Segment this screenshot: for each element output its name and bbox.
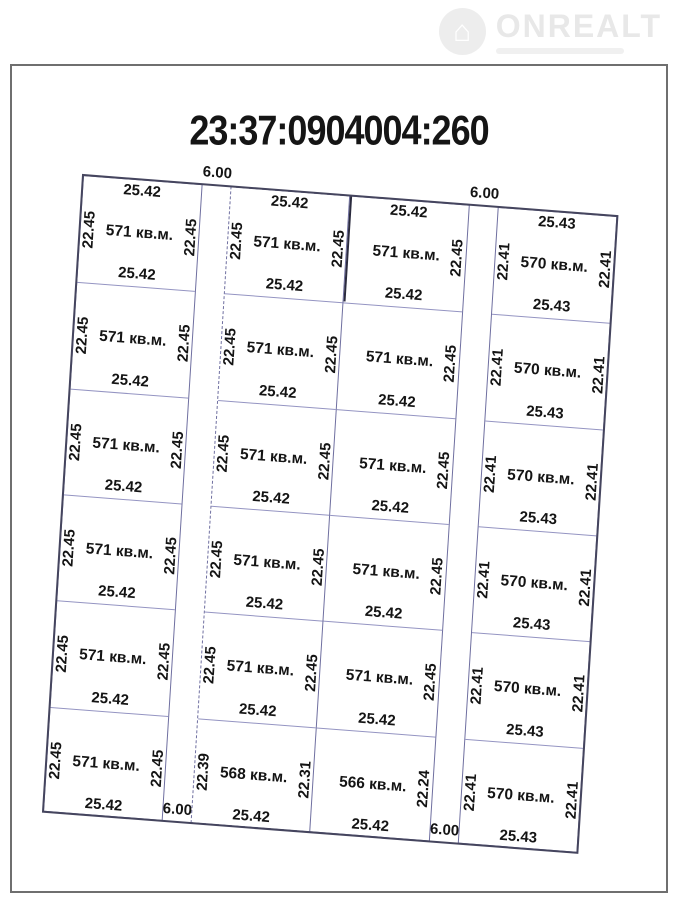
road-width-label: 6.00 xyxy=(202,163,232,183)
height-dimension-label: 22.45 xyxy=(447,239,467,278)
height-dimension-label: 22.41 xyxy=(576,568,596,607)
height-dimension-label: 22.45 xyxy=(154,643,174,682)
width-dimension-label: 25.42 xyxy=(258,382,297,403)
height-dimension-label: 22.45 xyxy=(148,749,168,788)
parcel-area-label: 571 кв.м. xyxy=(226,658,294,681)
width-dimension-label: 25.43 xyxy=(526,402,565,423)
parcel-area-label: 571 кв.м. xyxy=(359,455,427,478)
width-dimension-label: 25.43 xyxy=(499,827,538,848)
parcel-area-label: 570 кв.м. xyxy=(513,360,581,383)
width-dimension-label: 25.42 xyxy=(98,583,137,604)
width-dimension-label: 25.42 xyxy=(358,709,397,730)
width-dimension-label: 25.43 xyxy=(532,296,571,317)
height-dimension-label: 22.41 xyxy=(569,675,589,714)
parcel-area-label: 570 кв.м. xyxy=(500,572,568,595)
onrealt-logo: ⌂ ONREALT xyxy=(439,8,662,55)
height-dimension-label: 22.41 xyxy=(488,348,508,387)
parcel-area-label: 571 кв.м. xyxy=(99,328,167,351)
logo-subtitle-bar xyxy=(496,48,624,54)
parcel-area-label: 566 кв.м. xyxy=(339,773,407,796)
width-dimension-label: 25.42 xyxy=(371,497,410,518)
width-dimension-label: 25.42 xyxy=(245,594,284,615)
height-dimension-label: 22.41 xyxy=(563,781,583,820)
height-dimension-label: 22.45 xyxy=(181,218,201,257)
width-dimension-label: 25.42 xyxy=(232,806,271,827)
cadastral-number-title: 23:37:0904004:260 xyxy=(12,106,666,155)
height-dimension-label: 22.41 xyxy=(583,462,603,501)
logo-text-block: ONREALT xyxy=(496,9,662,53)
height-dimension-label: 22.45 xyxy=(214,434,234,473)
parcel-area-label: 571 кв.м. xyxy=(105,222,173,245)
width-dimension-label: 25.43 xyxy=(519,508,558,529)
parcel-area-label: 570 кв.м. xyxy=(493,678,561,701)
height-dimension-label: 22.45 xyxy=(200,646,220,685)
height-dimension-label: 22.41 xyxy=(468,667,488,706)
parcel-area-label: 571 кв.м. xyxy=(345,667,413,690)
parcel-area-label: 570 кв.м. xyxy=(507,466,575,489)
parcel-area-label: 571 кв.м. xyxy=(72,753,140,776)
height-dimension-label: 22.45 xyxy=(427,557,447,596)
parcel-area-label: 571 кв.м. xyxy=(372,243,440,266)
width-dimension-label: 25.42 xyxy=(389,202,428,223)
width-dimension-label: 25.42 xyxy=(351,815,390,836)
height-dimension-label: 22.45 xyxy=(66,423,86,462)
width-dimension-label: 25.42 xyxy=(270,192,309,213)
height-dimension-label: 22.45 xyxy=(441,345,461,384)
height-dimension-label: 22.45 xyxy=(220,328,240,367)
height-dimension-label: 22.45 xyxy=(434,451,454,490)
height-dimension-label: 22.45 xyxy=(46,741,66,780)
height-dimension-label: 22.41 xyxy=(596,250,616,289)
parcel-area-label: 571 кв.м. xyxy=(85,540,153,563)
cadastral-plan: 25.4225.4225.4225.4225.4225.4225.42571 к… xyxy=(43,175,617,853)
height-dimension-label: 22.45 xyxy=(168,430,188,469)
parcel-area-label: 571 кв.м. xyxy=(233,552,301,575)
parcel-area-label: 571 кв.м. xyxy=(239,446,307,469)
width-dimension-label: 25.42 xyxy=(118,264,157,285)
width-dimension-label: 25.42 xyxy=(104,477,143,498)
parcel-area-label: 571 кв.м. xyxy=(246,340,314,363)
width-dimension-label: 25.43 xyxy=(538,213,577,234)
height-dimension-label: 22.39 xyxy=(194,752,214,791)
parcel-area-label: 570 кв.м. xyxy=(487,785,555,808)
height-dimension-label: 22.41 xyxy=(494,242,514,281)
width-dimension-label: 25.42 xyxy=(252,488,291,509)
height-dimension-label: 22.41 xyxy=(474,561,494,600)
height-dimension-label: 22.41 xyxy=(589,356,609,395)
width-dimension-label: 25.42 xyxy=(384,285,423,306)
width-dimension-label: 25.42 xyxy=(238,700,277,721)
height-dimension-label: 22.24 xyxy=(414,769,434,808)
parcel-area-label: 571 кв.м. xyxy=(253,233,321,256)
height-dimension-label: 22.41 xyxy=(461,773,481,812)
height-dimension-label: 22.41 xyxy=(481,454,501,493)
width-dimension-label: 25.43 xyxy=(512,615,551,636)
width-dimension-label: 25.42 xyxy=(123,181,162,202)
width-dimension-label: 25.42 xyxy=(91,689,130,710)
height-dimension-label: 22.45 xyxy=(73,317,93,356)
height-dimension-label: 22.45 xyxy=(53,635,73,674)
height-dimension-label: 22.45 xyxy=(227,222,247,261)
parcel-area-label: 571 кв.м. xyxy=(79,647,147,670)
height-dimension-label: 22.45 xyxy=(161,537,181,576)
width-dimension-label: 25.42 xyxy=(265,276,304,297)
house-icon: ⌂ xyxy=(439,8,486,55)
width-dimension-label: 25.42 xyxy=(378,391,417,412)
parcel-area-label: 571 кв.м. xyxy=(92,434,160,457)
road-width-label: 6.00 xyxy=(429,820,459,840)
width-dimension-label: 25.42 xyxy=(364,603,403,624)
height-dimension-label: 22.45 xyxy=(174,324,194,363)
parcel-area-label: 571 кв.м. xyxy=(365,349,433,372)
road-width-label: 6.00 xyxy=(162,800,192,820)
width-dimension-label: 25.42 xyxy=(84,795,123,816)
height-dimension-label: 22.45 xyxy=(79,210,99,249)
parcel-area-label: 570 кв.м. xyxy=(520,254,588,277)
logo-brand-text: ONREALT xyxy=(496,9,662,44)
width-dimension-label: 25.42 xyxy=(111,370,150,391)
height-dimension-label: 22.45 xyxy=(421,663,441,702)
road-width-label: 6.00 xyxy=(469,184,499,204)
width-dimension-label: 25.43 xyxy=(506,721,545,742)
height-dimension-label: 22.45 xyxy=(59,529,79,568)
parcel-area-label: 571 кв.м. xyxy=(352,561,420,584)
parcel-area-label: 568 кв.м. xyxy=(219,764,287,787)
height-dimension-label: 22.45 xyxy=(207,540,227,579)
